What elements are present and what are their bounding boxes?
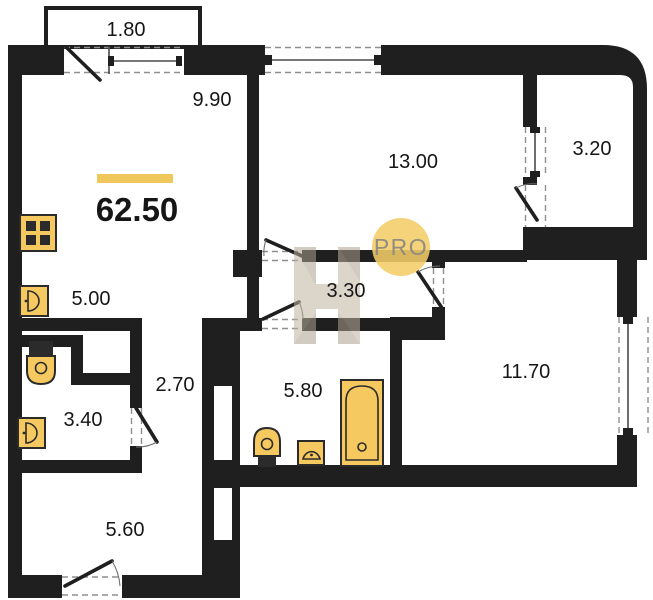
pro-badge: PRO	[372, 218, 430, 276]
window-balcony-right	[516, 127, 546, 227]
floor-plan: PRO 62.50 1.80 9.90 13.00 3.20 5.00 3.30…	[0, 0, 653, 600]
sink-icon	[18, 418, 45, 448]
window-bedroom1	[265, 48, 381, 73]
walls	[8, 45, 647, 598]
door-swing-icon	[263, 302, 299, 319]
sink-icon	[20, 286, 48, 316]
pro-badge-label: PRO	[374, 234, 428, 260]
area-label-bathroom: 5.80	[284, 380, 323, 402]
floor-plan-canvas: PRO 62.50 1.80 9.90 13.00 3.20 5.00 3.30…	[0, 0, 653, 600]
area-label-bedroom1: 13.00	[388, 151, 438, 173]
window-bedroom2	[619, 317, 648, 435]
window-balcony-door-top-left	[64, 47, 184, 80]
area-label-balcony-top: 1.80	[107, 19, 146, 41]
area-label-living: 9.90	[193, 89, 232, 111]
door-swing-icon	[66, 47, 100, 80]
area-label-kitchen: 5.00	[72, 288, 111, 310]
toilet-icon	[254, 428, 280, 467]
area-label-wc: 3.40	[64, 409, 103, 431]
area-label-bedroom2: 11.70	[502, 361, 551, 383]
door-swing-icon	[65, 561, 112, 586]
door-swing-icon	[418, 272, 442, 308]
total-area-label: 62.50	[96, 191, 179, 228]
sink-icon	[298, 441, 324, 465]
door-swing-icon	[136, 408, 157, 442]
toilet-icon	[27, 341, 55, 384]
total-area-accent-bar	[97, 174, 173, 183]
bathtub-icon	[341, 380, 383, 466]
vent-shaft	[214, 386, 232, 460]
vent-shaft	[214, 488, 232, 540]
door-entry	[62, 561, 122, 595]
stove-icon	[20, 215, 56, 251]
door-hall-to-bedroom2	[418, 266, 444, 308]
area-label-corridor: 2.70	[156, 374, 195, 396]
door-swing-icon	[516, 188, 537, 220]
door-wc	[132, 408, 158, 447]
area-label-entry: 5.60	[106, 519, 145, 541]
area-label-balcony-right: 3.20	[573, 138, 612, 160]
area-label-hall: 3.30	[327, 280, 366, 302]
